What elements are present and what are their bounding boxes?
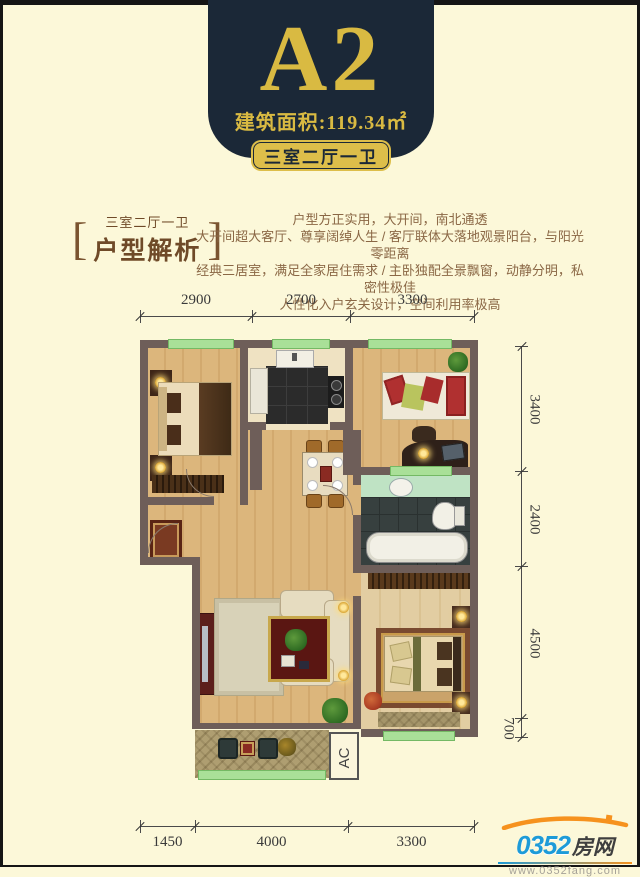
lamp <box>338 670 349 681</box>
layout-tag-text: 三室二厅一卫 <box>253 142 389 169</box>
coffee-table <box>268 616 330 682</box>
dimension-right: 3400 2400 4500 700 <box>506 346 556 738</box>
daybed-sofa <box>382 372 470 420</box>
table-item <box>299 661 309 669</box>
tv-screen <box>202 626 208 682</box>
lamp <box>155 462 166 473</box>
wall-kitchen-bottom <box>248 422 266 430</box>
wall-living-bottom <box>192 723 353 729</box>
built-area-label: 建筑面积:119.34㎡ <box>208 106 434 135</box>
wall-bedroom1-right <box>240 348 248 505</box>
left-bracket: [ <box>72 214 87 264</box>
dim-label: 3300 <box>348 834 475 851</box>
bed-runner <box>413 637 421 691</box>
kitchen-window <box>272 339 330 349</box>
unit-banner: A2 建筑面积:119.34㎡ 三室二厅一卫 <box>208 0 434 158</box>
wall-bedroom1-bottom <box>148 497 214 505</box>
bay-window-floor <box>378 712 460 727</box>
logo-text: 0352 房网 <box>494 830 636 861</box>
wall-right <box>470 340 478 737</box>
bathtub <box>366 532 468 563</box>
description-line: 经典三居室，满足全家居住需求 / 主卧独配全景飘窗，动静分明，私密性极佳 <box>192 262 588 296</box>
desk <box>402 440 468 467</box>
plant <box>278 738 296 756</box>
bedroom1-window <box>168 339 234 349</box>
polka-pillow <box>420 376 443 404</box>
dim-label: 2900 <box>140 292 252 309</box>
bed <box>158 382 232 456</box>
logo-suffix: 房网 <box>572 831 614 861</box>
lamp <box>456 697 467 708</box>
balcony-table <box>240 741 255 756</box>
bed-blanket <box>199 383 231 455</box>
dim-label: 2400 <box>526 500 543 540</box>
pillow <box>389 641 412 662</box>
plate <box>307 457 318 468</box>
ac-label: AC <box>336 745 352 771</box>
flower-pot <box>364 692 382 710</box>
wall-left-upper <box>140 340 148 565</box>
plate <box>307 480 318 491</box>
wall-hall-right <box>353 596 361 729</box>
wall-hall-right <box>353 475 361 485</box>
plant <box>322 698 348 724</box>
headboard <box>453 637 461 691</box>
wall-kitchen-bottom <box>330 422 345 430</box>
lamp <box>456 611 467 622</box>
study-window <box>368 339 452 349</box>
balcony-chair <box>258 738 278 759</box>
centerpiece <box>320 466 332 482</box>
analysis-tagline: 三室二厅一卫 <box>105 212 189 231</box>
pillow <box>390 666 412 686</box>
unit-name: A2 <box>208 12 434 106</box>
bathroom-glass <box>390 466 452 476</box>
wall-stub <box>250 430 262 490</box>
polka-cushion <box>446 376 466 416</box>
kitchen-counter <box>250 368 268 414</box>
analysis-title: 户型解析 <box>93 231 201 267</box>
logo-divider <box>498 862 632 864</box>
balcony-chair <box>218 738 238 759</box>
laptop <box>441 443 465 462</box>
table-item <box>281 655 295 667</box>
wall-hall-right <box>353 515 361 573</box>
bed-bolster <box>159 387 167 451</box>
plate <box>332 457 343 468</box>
burner <box>331 380 342 391</box>
analysis-label: 三室二厅一卫 户型解析 <box>93 212 201 267</box>
dim-line <box>521 346 522 738</box>
balcony-window <box>198 770 326 780</box>
dim-label: 3300 <box>350 292 475 309</box>
flyer-page: { "banner": { "model": "A2", "area": "建筑… <box>0 0 640 867</box>
logo-number: 0352 <box>516 830 570 861</box>
dim-label: 1450 <box>140 834 195 851</box>
site-logo[interactable]: 0352 房网 www.0352fang.com <box>494 814 636 864</box>
dim-label: 4000 <box>195 834 348 851</box>
master-wardrobe <box>368 573 470 589</box>
lamp <box>338 602 349 613</box>
pillow <box>167 425 181 445</box>
roof-icon <box>494 814 636 830</box>
faucet <box>292 353 297 361</box>
dim-label: 3400 <box>526 390 543 430</box>
layout-tag-pill: 三室二厅一卫 <box>251 140 391 171</box>
outside-area <box>140 565 192 729</box>
sink <box>389 478 413 497</box>
cooktop <box>328 376 344 408</box>
bathroom-vanity <box>361 475 470 497</box>
kitchen-sink <box>276 350 314 368</box>
table-plant <box>285 629 307 651</box>
master-bed <box>384 636 462 692</box>
dim-label: 2700 <box>252 292 350 309</box>
wall-left-lower <box>192 557 200 729</box>
burner <box>331 394 342 405</box>
wall-bathroom-bottom <box>361 565 470 573</box>
pillow <box>437 642 452 660</box>
toilet-tank <box>454 506 465 526</box>
description-line: 户型方正实用，大开间，南北通透 <box>192 211 588 228</box>
dim-label: 700 <box>500 711 517 747</box>
wall-step <box>140 557 192 565</box>
lamp <box>418 448 429 459</box>
dim-line <box>140 826 475 827</box>
dining-chair <box>306 494 322 508</box>
description-line: 大开间超大客厅、尊享阔绰人生 / 客厅联体大落地观景阳台，与阳光零距离 <box>192 228 588 262</box>
dimension-bottom: 1450 4000 3300 <box>140 820 475 856</box>
master-window <box>383 731 455 741</box>
dim-label: 4500 <box>526 624 543 664</box>
dim-line <box>140 316 475 317</box>
plant <box>448 352 468 372</box>
floor-plan: AC <box>140 340 478 788</box>
pillow <box>437 668 452 686</box>
bathroom-floor <box>361 475 470 565</box>
pillow <box>167 393 181 413</box>
kitchen-tiles <box>266 366 328 424</box>
ac-platform: AC <box>329 732 359 780</box>
dimension-top: 2900 2700 3300 <box>140 292 475 324</box>
